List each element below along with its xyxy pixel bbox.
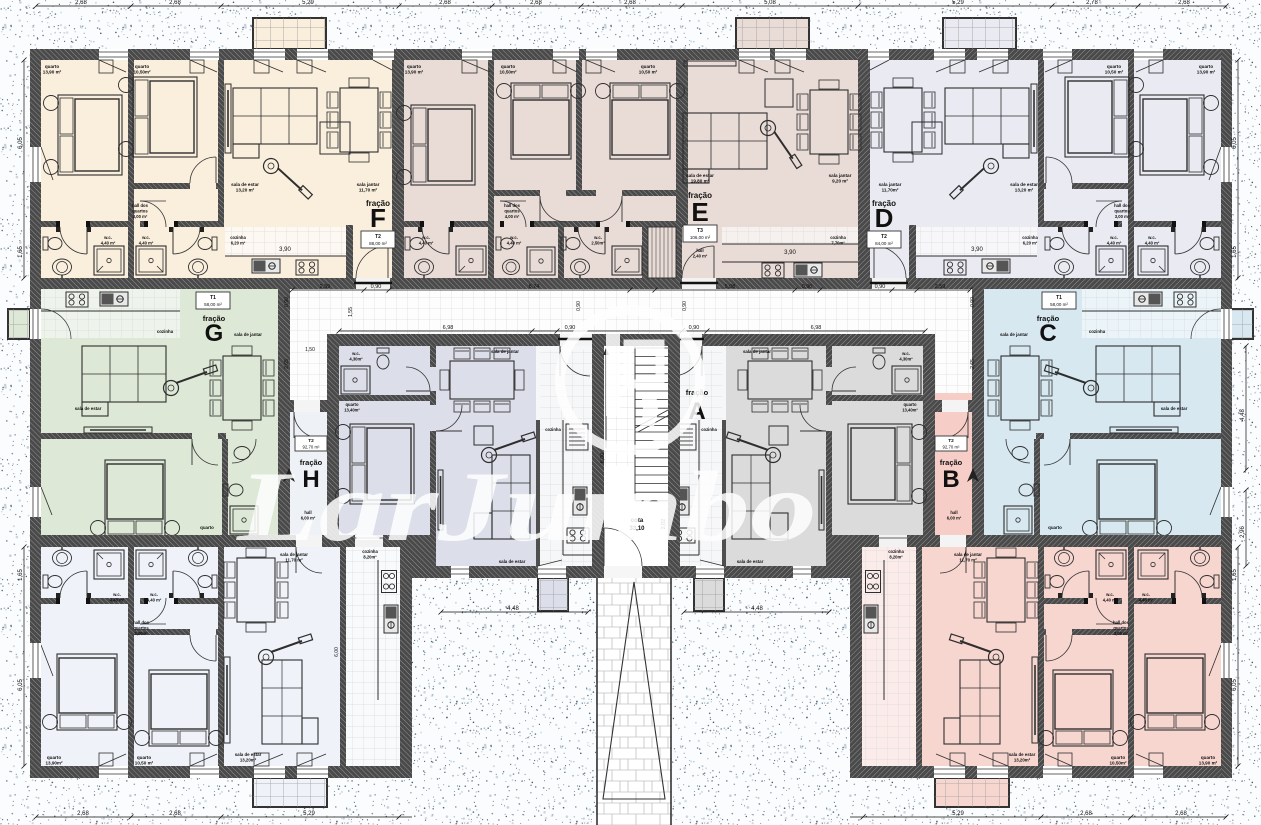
svg-text:88,00 m²: 88,00 m² — [369, 241, 387, 246]
svg-text:w.c.: w.c. — [1105, 592, 1114, 597]
svg-text:2,96: 2,96 — [1240, 526, 1246, 538]
svg-text:13,20m²: 13,20m² — [1014, 758, 1031, 763]
svg-text:hall dos: hall dos — [504, 203, 520, 208]
svg-text:84,00 m²: 84,00 m² — [875, 241, 893, 246]
svg-text:2,65: 2,65 — [284, 359, 290, 369]
svg-text:quartos: quartos — [132, 209, 148, 214]
svg-text:hall dos: hall dos — [133, 620, 149, 625]
svg-text:11,70m²: 11,70m² — [882, 188, 899, 193]
svg-text:3,00 m²: 3,00 m² — [133, 214, 148, 219]
svg-text:4,40 m²: 4,40 m² — [419, 241, 434, 246]
svg-text:T2: T2 — [881, 234, 887, 240]
svg-text:0,90: 0,90 — [689, 325, 700, 331]
svg-text:4,48: 4,48 — [751, 606, 763, 612]
svg-text:5,29: 5,29 — [952, 0, 964, 6]
svg-text:quarto: quarto — [135, 64, 149, 69]
svg-text:10,50 m²: 10,50 m² — [1105, 70, 1124, 75]
svg-text:0,90: 0,90 — [682, 301, 688, 311]
svg-text:4,40 m²: 4,40 m² — [139, 241, 154, 246]
svg-text:cozinha: cozinha — [1022, 235, 1038, 240]
svg-text:B: B — [942, 466, 959, 493]
svg-text:0,90: 0,90 — [970, 297, 976, 307]
svg-text:sala de jantar: sala de jantar — [743, 349, 771, 354]
svg-text:sala de estar: sala de estar — [231, 182, 259, 187]
svg-text:2,68: 2,68 — [439, 0, 451, 6]
svg-text:4,30m²: 4,30m² — [899, 357, 913, 362]
svg-text:sala de jantar: sala de jantar — [491, 349, 519, 354]
svg-text:5,08: 5,08 — [725, 284, 736, 290]
svg-text:2,68: 2,68 — [169, 811, 181, 817]
svg-text:T1: T1 — [1056, 295, 1062, 301]
svg-text:6,05: 6,05 — [18, 137, 24, 149]
svg-text:58,00 m²: 58,00 m² — [204, 302, 222, 307]
svg-text:w.c.: w.c. — [1141, 592, 1150, 597]
svg-text:quarto: quarto — [501, 64, 515, 69]
svg-text:sala jantar: sala jantar — [879, 182, 902, 187]
svg-text:w.c.: w.c. — [149, 592, 158, 597]
svg-text:13,90 m²: 13,90 m² — [405, 70, 424, 75]
svg-text:D: D — [875, 203, 894, 233]
svg-text:6,98: 6,98 — [443, 325, 454, 331]
svg-text:5,29: 5,29 — [303, 811, 315, 817]
svg-text:2,68: 2,68 — [624, 0, 636, 6]
svg-text:58,00 m²: 58,00 m² — [1050, 302, 1068, 307]
svg-text:quarto: quarto — [641, 64, 655, 69]
svg-text:quarto: quarto — [45, 64, 59, 69]
svg-text:quarto: quarto — [1111, 755, 1125, 760]
svg-text:6,05: 6,05 — [18, 679, 24, 691]
svg-text:hall dos: hall dos — [1114, 203, 1130, 208]
svg-text:sala de estar: sala de estar — [1161, 406, 1188, 411]
svg-text:13,90 m²: 13,90 m² — [43, 70, 62, 75]
svg-text:13,90m²: 13,90m² — [45, 761, 63, 766]
svg-text:3,90: 3,90 — [971, 247, 983, 253]
svg-text:2,68: 2,68 — [1175, 811, 1187, 817]
svg-text:3,00m²: 3,00m² — [134, 631, 148, 636]
svg-text:quarto: quarto — [1199, 64, 1213, 69]
svg-text:sala de jantar: sala de jantar — [1000, 332, 1028, 337]
svg-text:C: C — [1039, 320, 1056, 347]
svg-text:2,78: 2,78 — [1086, 0, 1098, 6]
svg-text:sala jantar: sala jantar — [357, 182, 380, 187]
svg-text:w.c.: w.c. — [1147, 235, 1156, 240]
svg-text:4,40 m²: 4,40 m² — [507, 241, 522, 246]
svg-text:9,20 m²: 9,20 m² — [832, 179, 848, 184]
svg-text:6,00 m²: 6,00 m² — [947, 516, 962, 521]
svg-text:4,40 m²: 4,40 m² — [110, 598, 125, 603]
svg-text:2,68: 2,68 — [1080, 811, 1092, 817]
svg-text:quarto: quarto — [1107, 64, 1121, 69]
svg-text:13,20 m²: 13,20 m² — [236, 188, 255, 193]
svg-text:sala de estar: sala de estar — [75, 406, 102, 411]
svg-text:106,00 m²: 106,00 m² — [690, 235, 711, 240]
svg-text:w.c.: w.c. — [593, 235, 602, 240]
svg-text:6,20 m²: 6,20 m² — [231, 241, 246, 246]
svg-text:6,20 m²: 6,20 m² — [1023, 241, 1038, 246]
svg-text:E: E — [691, 197, 708, 227]
svg-text:0,90: 0,90 — [802, 284, 813, 290]
svg-text:G: G — [205, 320, 224, 347]
svg-text:quartos: quartos — [504, 209, 520, 214]
svg-text:6,00: 6,00 — [334, 647, 340, 657]
svg-text:4,40 m²: 4,40 m² — [1139, 598, 1154, 603]
svg-text:cozinha: cozinha — [830, 235, 846, 240]
svg-text:F: F — [370, 203, 386, 233]
svg-text:T2: T2 — [948, 438, 954, 444]
svg-text:0,90: 0,90 — [371, 284, 382, 290]
svg-text:w.c.: w.c. — [351, 351, 360, 356]
svg-text:2,65: 2,65 — [970, 359, 976, 369]
svg-text:11,70 m²: 11,70 m² — [959, 558, 977, 563]
svg-text:4,30m²: 4,30m² — [349, 357, 363, 362]
svg-text:3,90: 3,90 — [279, 247, 291, 253]
svg-text:4,40 m²: 4,40 m² — [1107, 241, 1122, 246]
svg-text:5,29: 5,29 — [952, 811, 964, 817]
svg-text:1,65: 1,65 — [18, 569, 24, 581]
svg-text:8,74: 8,74 — [529, 284, 540, 290]
svg-text:hall: hall — [950, 510, 957, 515]
svg-text:13,40m²: 13,40m² — [902, 408, 918, 413]
svg-text:13,90 m²: 13,90 m² — [1199, 761, 1218, 766]
svg-text:6,98: 6,98 — [811, 325, 822, 331]
svg-text:2,59: 2,59 — [935, 284, 946, 290]
svg-text:3,00 m²: 3,00 m² — [1115, 214, 1130, 219]
svg-text:5,08: 5,08 — [764, 0, 776, 6]
svg-text:sala de jantar: sala de jantar — [954, 552, 982, 557]
svg-text:T2: T2 — [375, 234, 381, 240]
svg-text:10,50 m²: 10,50 m² — [639, 70, 658, 75]
svg-text:2,68: 2,68 — [169, 0, 181, 6]
svg-text:sala de estar: sala de estar — [235, 752, 262, 757]
svg-text:cozinha: cozinha — [701, 427, 717, 432]
svg-text:1,50: 1,50 — [305, 347, 315, 353]
svg-text:0,90: 0,90 — [875, 284, 886, 290]
svg-text:quarto: quarto — [200, 525, 214, 530]
svg-text:4,40 m²: 4,40 m² — [1145, 241, 1160, 246]
svg-text:hall: hall — [696, 248, 703, 253]
svg-text:w.c.: w.c. — [901, 351, 910, 356]
svg-text:2,68: 2,68 — [1178, 0, 1190, 6]
svg-text:10,50m²: 10,50m² — [499, 70, 517, 75]
svg-text:2,68: 2,68 — [530, 0, 542, 6]
svg-text:w.c.: w.c. — [1109, 235, 1118, 240]
svg-text:quarto: quarto — [345, 402, 358, 407]
svg-text:10,50m²: 10,50m² — [1109, 761, 1127, 766]
svg-text:0,90: 0,90 — [565, 325, 576, 331]
svg-text:cozinha: cozinha — [157, 329, 174, 334]
svg-text:sala de jantar: sala de jantar — [234, 332, 262, 337]
svg-text:quarto: quarto — [407, 64, 421, 69]
svg-text:hall dos: hall dos — [132, 203, 148, 208]
svg-text:cozinha: cozinha — [545, 427, 561, 432]
svg-text:1,55: 1,55 — [348, 307, 354, 317]
svg-text:13,20m²: 13,20m² — [240, 758, 257, 763]
svg-text:cozinha: cozinha — [230, 235, 246, 240]
svg-text:13,20 m²: 13,20 m² — [1015, 188, 1034, 193]
svg-text:sala de estar: sala de estar — [686, 173, 714, 178]
svg-text:4,48: 4,48 — [507, 606, 519, 612]
svg-text:10,50 m²: 10,50 m² — [135, 761, 154, 766]
svg-text:w.c.: w.c. — [103, 235, 112, 240]
svg-text:sala jantar: sala jantar — [829, 173, 852, 178]
svg-text:cozinha: cozinha — [888, 549, 904, 554]
svg-text:hall dos: hall dos — [1113, 620, 1129, 625]
svg-text:2,68: 2,68 — [75, 0, 87, 6]
svg-text:2,68: 2,68 — [77, 811, 89, 817]
svg-text:92,70 m²: 92,70 m² — [303, 445, 321, 450]
svg-text:quartos: quartos — [1114, 209, 1130, 214]
svg-text:2,50m²: 2,50m² — [591, 241, 605, 246]
svg-text:2,40 m²: 2,40 m² — [693, 254, 708, 259]
svg-text:6,05: 6,05 — [1232, 679, 1238, 691]
svg-text:quartos: quartos — [1113, 626, 1129, 631]
svg-text:19,80 m²: 19,80 m² — [691, 179, 710, 184]
svg-text:4,48: 4,48 — [1240, 409, 1246, 421]
svg-text:0,90: 0,90 — [576, 301, 582, 311]
svg-text:quarto: quarto — [903, 402, 916, 407]
svg-text:1,65: 1,65 — [18, 246, 24, 258]
svg-text:92,70 m²: 92,70 m² — [943, 445, 961, 450]
svg-text:quartos: quartos — [133, 626, 149, 631]
svg-text:cozinha: cozinha — [1089, 329, 1106, 334]
svg-text:w.c.: w.c. — [421, 235, 430, 240]
svg-text:10,50m²: 10,50m² — [133, 70, 151, 75]
svg-text:sala de estar: sala de estar — [1009, 752, 1036, 757]
svg-text:5,29: 5,29 — [302, 0, 314, 6]
svg-text:3,00 m²: 3,00 m² — [1114, 631, 1129, 636]
svg-text:quarto: quarto — [1048, 525, 1062, 530]
svg-text:sala de estar: sala de estar — [1010, 182, 1038, 187]
svg-text:11,70 m²: 11,70 m² — [359, 188, 378, 193]
svg-text:4,40 m²: 4,40 m² — [1103, 598, 1118, 603]
svg-text:3,90: 3,90 — [784, 250, 796, 256]
svg-text:LarJumbo: LarJumbo — [236, 451, 817, 562]
svg-text:8,20m²: 8,20m² — [889, 555, 903, 560]
svg-text:2,59: 2,59 — [320, 284, 331, 290]
svg-text:0,90: 0,90 — [284, 297, 290, 307]
svg-text:T2: T2 — [308, 438, 314, 444]
svg-text:4,00 m²: 4,00 m² — [505, 214, 520, 219]
svg-text:4,40 m²: 4,40 m² — [147, 598, 162, 603]
svg-text:4,40 m²: 4,40 m² — [101, 241, 116, 246]
svg-text:13,90 m²: 13,90 m² — [1197, 70, 1216, 75]
svg-text:T3: T3 — [697, 228, 703, 234]
svg-text:T1: T1 — [210, 295, 216, 301]
svg-text:w.c.: w.c. — [141, 235, 150, 240]
svg-text:1,65: 1,65 — [1232, 569, 1238, 581]
svg-text:w.c.: w.c. — [509, 235, 518, 240]
svg-text:w.c.: w.c. — [112, 592, 121, 597]
svg-text:1,65: 1,65 — [1232, 246, 1238, 258]
svg-text:6,05: 6,05 — [1232, 137, 1238, 149]
svg-text:quarto: quarto — [47, 755, 61, 760]
svg-text:quarto: quarto — [137, 755, 151, 760]
svg-text:quarto: quarto — [1201, 755, 1215, 760]
svg-text:13,40m²: 13,40m² — [344, 408, 360, 413]
svg-text:7,70m²: 7,70m² — [831, 241, 845, 246]
